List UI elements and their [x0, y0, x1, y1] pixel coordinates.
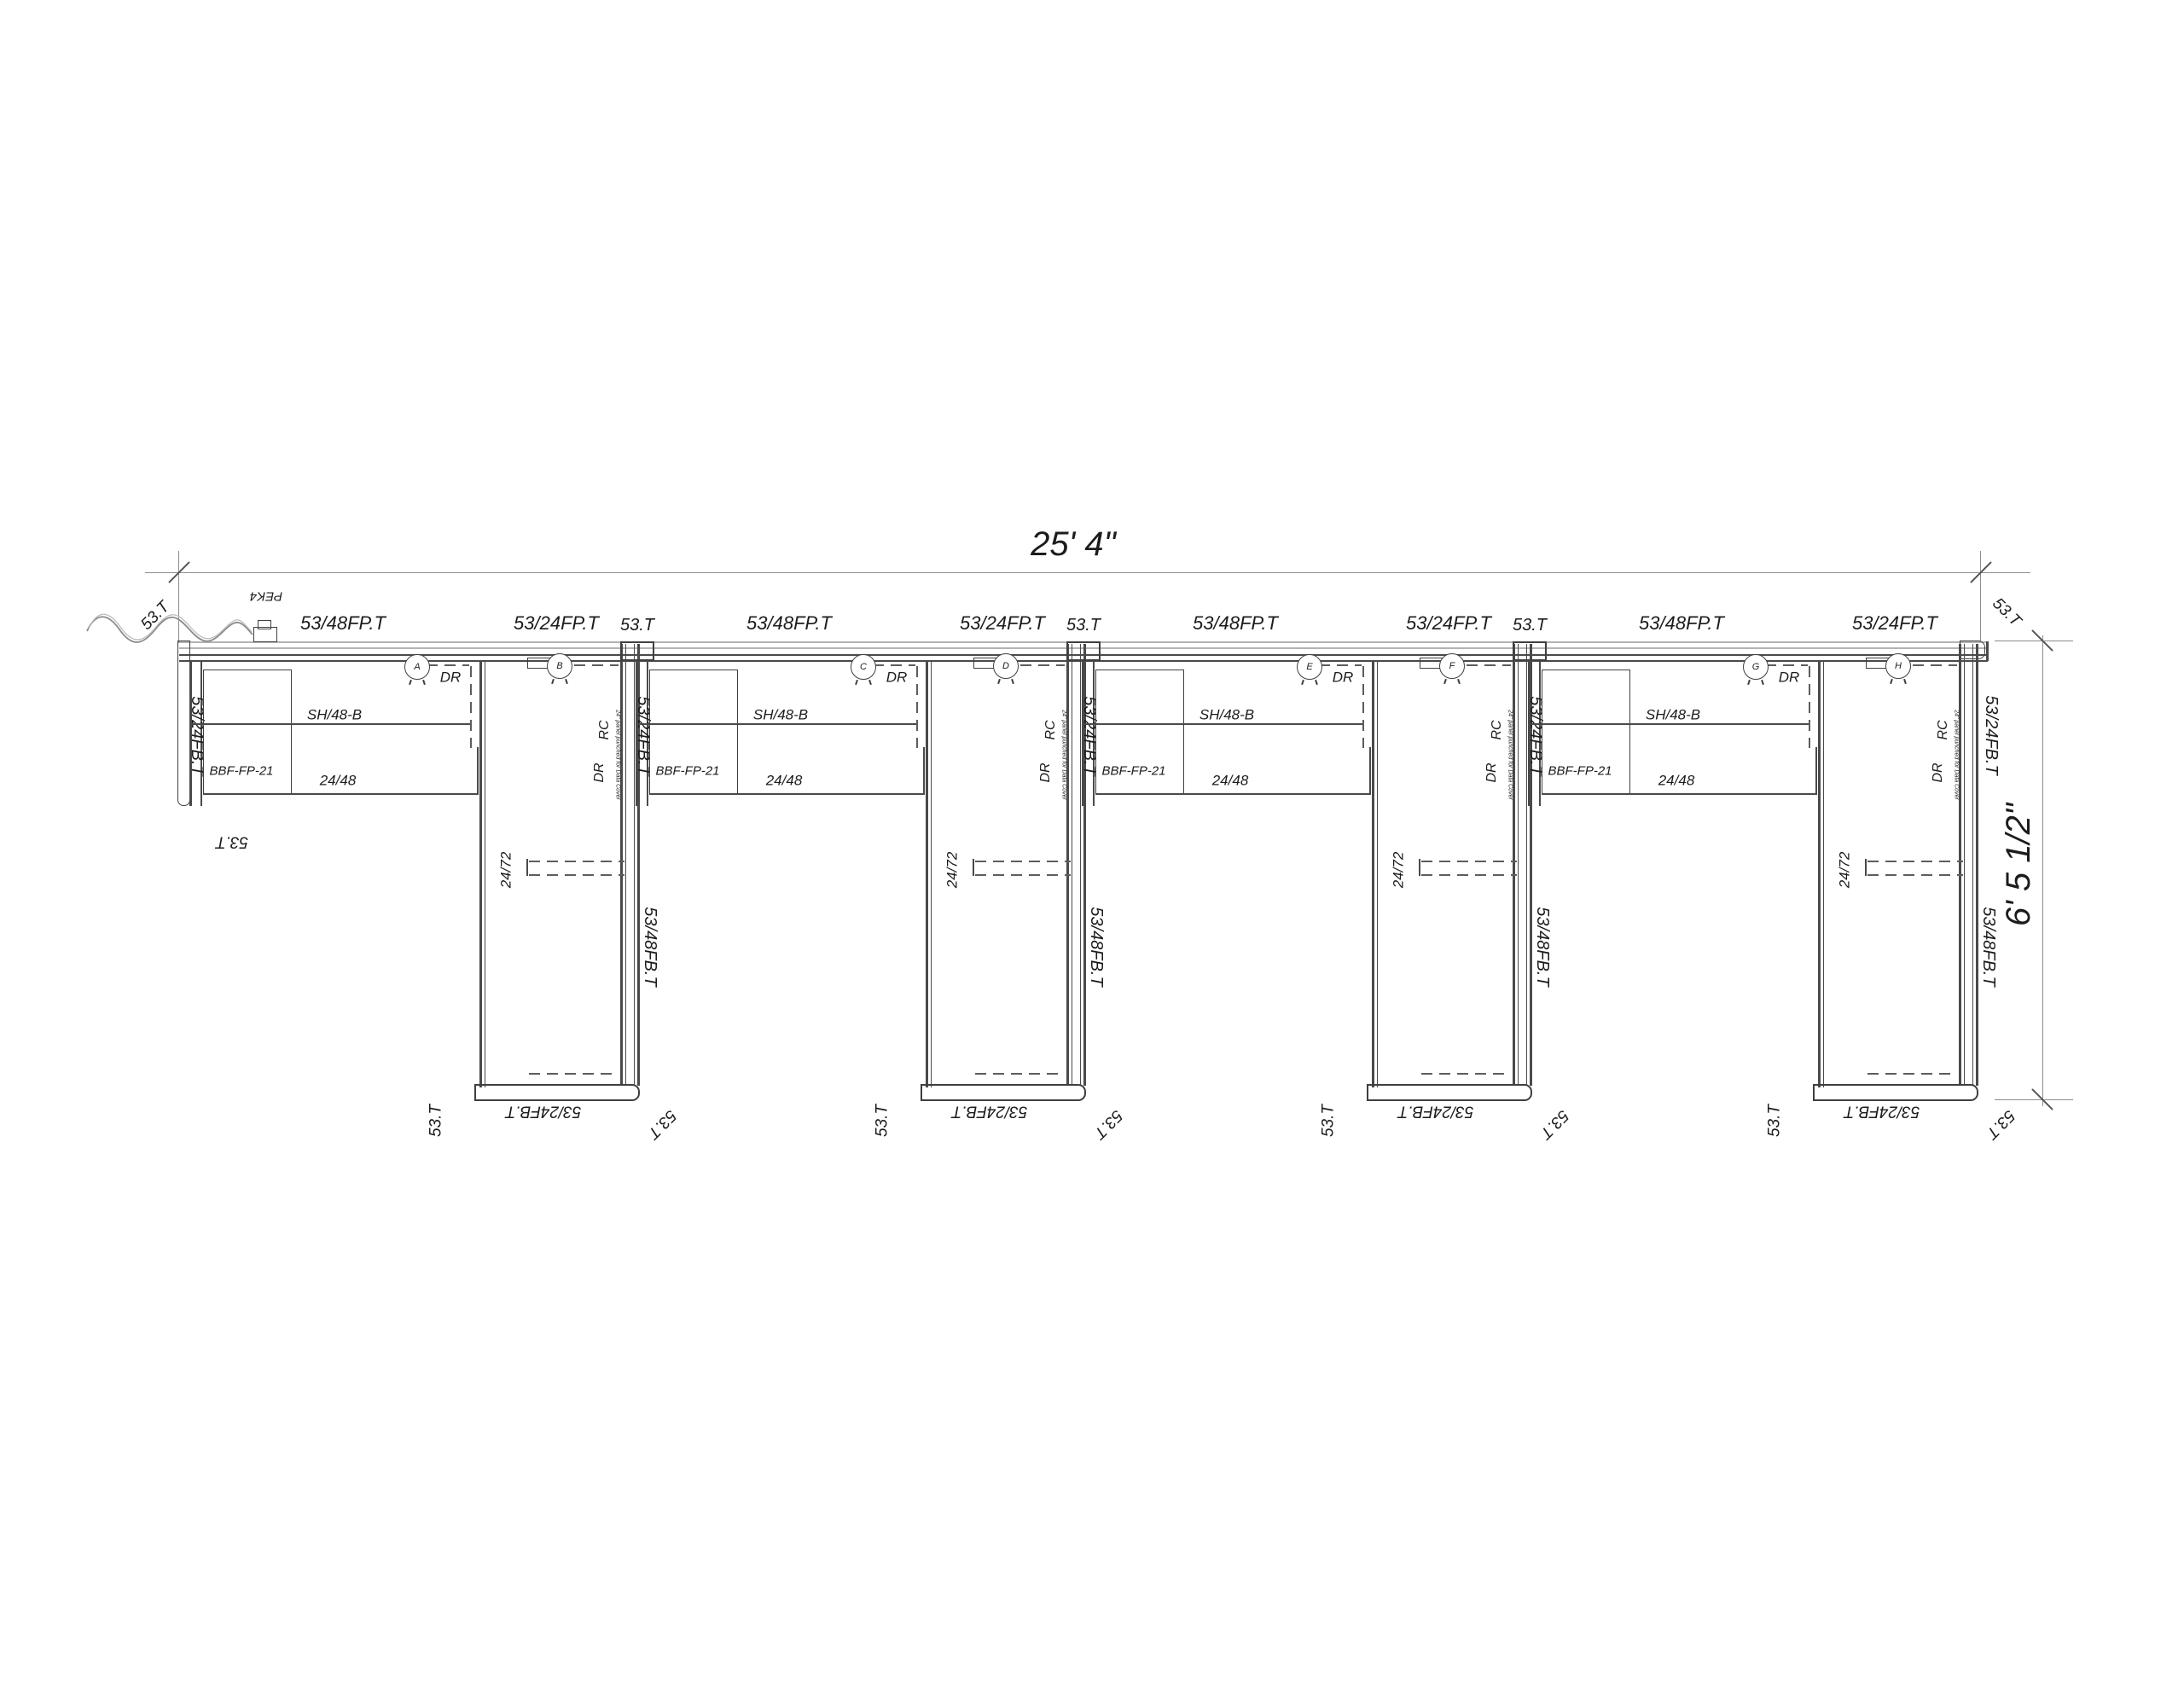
worksurface-side-line — [923, 747, 925, 795]
post-label: 53.T — [1513, 617, 1547, 634]
panel-note: 24" panel punched for Data Cover — [1954, 710, 1960, 800]
panel-note: 24" panel punched for Data Cover — [1061, 710, 1067, 800]
wing-bottom-label: 53/24FB.T — [1844, 1104, 1920, 1120]
wire-path-dashed — [1467, 664, 1511, 666]
rc-label: RC — [598, 720, 612, 739]
wing-panel-line — [1072, 644, 1072, 1086]
dr-label: DR — [1779, 670, 1800, 685]
worksurface-front-line — [1095, 793, 1371, 795]
wing-left-line — [1823, 661, 1824, 1087]
wing-left-line — [931, 661, 932, 1087]
support-dashed — [1867, 874, 1963, 876]
worksurface-front-line — [1542, 793, 1817, 795]
worksurface-front-line — [203, 793, 479, 795]
dr-label: DR — [1333, 670, 1354, 685]
wing-bottom-panel — [1813, 1084, 1978, 1101]
post-label: 53.T — [620, 617, 654, 634]
wing-worksurface-label: 24/72 — [945, 852, 960, 889]
shelf-label: SH/48-B — [307, 708, 362, 722]
worksurface-side-line — [477, 747, 479, 795]
grommet-letter: G — [1752, 662, 1760, 672]
wire-path-dashed — [574, 664, 619, 666]
wire-path-dashed — [916, 666, 918, 748]
grommet-letter: C — [860, 662, 867, 672]
worksurface-side-line — [1815, 747, 1817, 795]
pedestal-label: BBF-FP-21 — [209, 765, 273, 778]
post-connector — [620, 641, 654, 661]
grommet-letter: A — [414, 662, 420, 672]
support-dashed — [529, 874, 624, 876]
grommet-letter: D — [1002, 661, 1009, 671]
dr-label: DR — [593, 762, 607, 782]
shelf-label: SH/48-B — [753, 708, 808, 722]
bracket-line — [1419, 859, 1420, 876]
grommet-circle: C — [851, 654, 876, 680]
wire-path-dashed — [1809, 666, 1810, 748]
grommet-circle: A — [404, 654, 430, 680]
support-dashed — [1867, 1073, 1955, 1075]
grommet-circle: D — [993, 653, 1019, 679]
wing-top-label: 53/24FP.T — [514, 614, 599, 633]
bracket-line — [1865, 859, 1867, 876]
power-whip-squiggle — [85, 607, 256, 648]
shelf-front-line — [1082, 723, 1364, 725]
right-end-panel-label: 53/24FB.T — [1983, 695, 2000, 774]
shelf-front-line — [1528, 723, 1810, 725]
wing-bottom-panel — [474, 1084, 640, 1101]
bracket-line — [526, 859, 528, 876]
horizontal-dimension-label: 25' 4" — [1031, 527, 1116, 561]
support-dashed — [1421, 861, 1517, 862]
support-dashed — [975, 861, 1071, 862]
support-dashed — [1867, 861, 1963, 862]
wing-panel-line — [1964, 644, 1965, 1086]
panel-tag: 53.T — [1537, 1107, 1571, 1141]
wing-left-line — [1818, 661, 1821, 1087]
wire-path-dashed — [470, 666, 472, 748]
support-dashed — [975, 874, 1071, 876]
vertical-dimension-label: 6' 5 1/2" — [2001, 803, 2036, 926]
wing-side-label: 53/48FB.T — [1088, 907, 1105, 986]
power-entry-label: PEK4 — [250, 590, 282, 603]
extension-line-top — [1995, 641, 2073, 641]
wire-path-dashed — [873, 664, 915, 666]
run-top-label: 53/48FP.T — [300, 614, 386, 633]
dr-label: DR — [1039, 762, 1053, 782]
panel-tag: 53.T — [216, 834, 248, 850]
shelf-label: SH/48-B — [1199, 708, 1254, 722]
grommet-letter: H — [1895, 661, 1902, 671]
bracket-line — [973, 859, 974, 876]
wing-left-line — [479, 661, 482, 1087]
shelf-label: SH/48-B — [1646, 708, 1700, 722]
wing-bottom-label: 53/24FB.T — [952, 1104, 1028, 1120]
wing-left-line — [1377, 661, 1378, 1087]
worksurface-label: 24/48 — [766, 774, 803, 788]
panel-note: 24" panel punched for Data Cover — [1507, 710, 1513, 800]
wing-worksurface-label: 24/72 — [1838, 852, 1852, 889]
wing-side-label: 53/48FB.T — [1980, 907, 1997, 986]
grommet-letter: B — [556, 661, 562, 671]
wing-top-label: 53/24FP.T — [1406, 614, 1491, 633]
worksurface-side-line — [1369, 747, 1371, 795]
wire-path-dashed — [1362, 666, 1364, 748]
wing-worksurface-label: 24/72 — [499, 852, 514, 889]
extension-line-bottom — [1995, 1099, 2073, 1100]
panel-tag: 53.T — [1091, 1107, 1125, 1141]
floorplan-canvas: 25' 4" 6' 5 1/2" 53.T PEK4 53.T 53.T 53/… — [0, 0, 2184, 1687]
wing-bottom-panel — [1367, 1084, 1532, 1101]
support-dashed — [975, 1073, 1062, 1075]
wire-path-dashed — [427, 664, 469, 666]
panel-tag: 53.T — [874, 1104, 891, 1137]
wing-bottom-label: 53/24FB.T — [506, 1104, 582, 1120]
dr-label: DR — [440, 670, 462, 685]
support-dashed — [529, 861, 624, 862]
extension-line-right — [1980, 551, 1981, 643]
power-entry-tab — [258, 620, 271, 629]
grommet-circle: G — [1743, 654, 1769, 680]
dr-label: DR — [886, 670, 908, 685]
dr-label: DR — [1931, 762, 1945, 782]
dr-label: DR — [1485, 762, 1499, 782]
grommet-circle: F — [1439, 653, 1465, 679]
panel-tag: 53.T — [1984, 1107, 2018, 1141]
dimension-line-horizontal — [145, 572, 2030, 573]
post-label: 53.T — [1066, 617, 1101, 634]
grommet-circle: B — [547, 653, 572, 679]
worksurface-label: 24/48 — [320, 774, 357, 788]
panel-tag: 53.T — [1321, 1104, 1337, 1137]
panel-band-end — [1986, 641, 1989, 661]
pedestal-label: BBF-FP-21 — [1548, 765, 1612, 778]
wing-left-line — [926, 661, 928, 1087]
wing-panel-line — [1972, 644, 1973, 1086]
run-top-label: 53/48FP.T — [1639, 614, 1724, 633]
wire-path-dashed — [1765, 664, 1808, 666]
support-dashed — [529, 1073, 616, 1075]
support-dashed — [1421, 874, 1517, 876]
wire-path-dashed — [1913, 664, 1957, 666]
panel-note: 24" panel punched for Data Cover — [615, 710, 621, 800]
grommet-circle: E — [1297, 654, 1322, 680]
wing-side-label: 53/48FB.T — [1534, 907, 1551, 986]
grommet-letter: E — [1306, 662, 1312, 672]
wing-left-line — [485, 661, 485, 1087]
worksurface-label: 24/48 — [1658, 774, 1695, 788]
wing-top-label: 53/24FP.T — [1852, 614, 1937, 633]
wire-path-dashed — [1020, 664, 1065, 666]
wire-path-dashed — [1319, 664, 1362, 666]
worksurface-front-line — [649, 793, 925, 795]
shelf-front-line — [636, 723, 918, 725]
support-dashed — [1421, 1073, 1508, 1075]
wing-panel-line — [1518, 644, 1519, 1086]
rc-label: RC — [1044, 720, 1058, 739]
wing-top-label: 53/24FP.T — [960, 614, 1045, 633]
panel-tag: 53.T — [1989, 595, 2024, 629]
grommet-circle: H — [1885, 653, 1911, 679]
rc-label: RC — [1937, 720, 1950, 739]
wing-bottom-panel — [921, 1084, 1086, 1101]
pedestal-label: BBF-FP-21 — [1101, 765, 1165, 778]
grommet-letter: F — [1449, 661, 1455, 671]
worksurface-label: 24/48 — [1212, 774, 1249, 788]
post-connector — [1513, 641, 1547, 661]
wing-panel-line — [625, 644, 626, 1086]
panel-tag: 53.T — [428, 1104, 444, 1137]
rc-label: RC — [1490, 720, 1504, 739]
dimension-line-vertical — [2042, 635, 2043, 1106]
run-top-label: 53/48FP.T — [746, 614, 832, 633]
wing-worksurface-label: 24/72 — [1391, 852, 1406, 889]
wing-bottom-label: 53/24FB.T — [1398, 1104, 1474, 1120]
panel-tag: 53.T — [645, 1107, 679, 1141]
wing-left-line — [1372, 661, 1374, 1087]
wing-side-label: 53/48FB.T — [642, 907, 659, 986]
post-connector — [1066, 641, 1101, 661]
run-top-label: 53/48FP.T — [1193, 614, 1278, 633]
shelf-front-line — [189, 723, 472, 725]
panel-tag: 53.T — [1767, 1104, 1783, 1137]
wing-panel-line — [1976, 644, 1978, 1086]
pedestal-label: BBF-FP-21 — [655, 765, 719, 778]
